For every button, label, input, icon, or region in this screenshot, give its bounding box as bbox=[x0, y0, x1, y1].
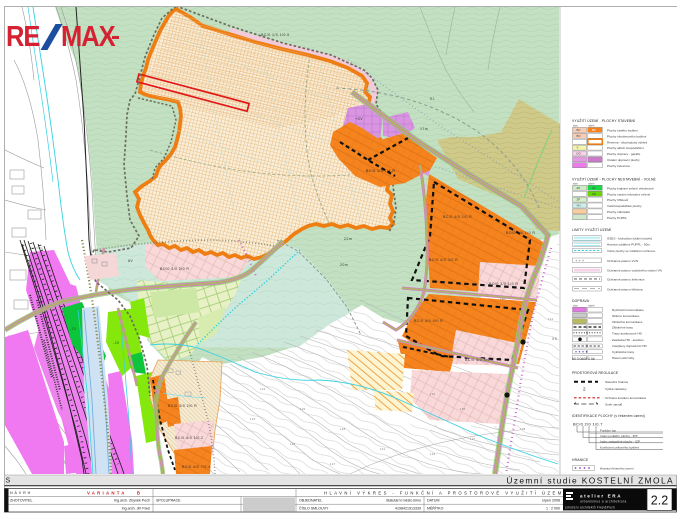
svg-text:Sběrné komunikace: Sběrné komunikace bbox=[612, 314, 640, 318]
svg-text:Plochy aktivit hospodářství: Plochy aktivit hospodářství bbox=[607, 146, 644, 150]
svg-text:Plochy všeobecného bydlení: Plochy všeobecného bydlení bbox=[607, 134, 647, 138]
svg-text:Hranice oddálení PUPFL - 50m: Hranice oddálení PUPFL - 50m bbox=[607, 243, 650, 247]
svg-text:ZR: ZR bbox=[592, 192, 596, 196]
svg-text:srpen 2008: srpen 2008 bbox=[542, 499, 560, 503]
svg-text:Plochy hřbitovů: Plochy hřbitovů bbox=[607, 198, 628, 202]
svg-text:Zklidněné trasy: Zklidněné trasy bbox=[612, 326, 633, 330]
svg-text:Statutární město Brno: Statutární město Brno bbox=[386, 499, 421, 503]
svg-text:Ochranné pásmo vzdušného veden: Ochranné pásmo vzdušného vedení VN bbox=[607, 269, 662, 273]
svg-text:131: 131 bbox=[380, 447, 386, 451]
svg-text:Zastávka HD - autobus: Zastávka HD - autobus bbox=[612, 338, 644, 342]
svg-text:Plochy čistého bydlení: Plochy čistého bydlení bbox=[607, 129, 638, 133]
svg-text:DATUM: DATUM bbox=[427, 499, 440, 503]
svg-text:Územní studie KOSTELNÍ ZMOLA: Územní studie KOSTELNÍ ZMOLA bbox=[506, 476, 674, 486]
svg-text:124: 124 bbox=[260, 387, 266, 391]
svg-text:Vodohospodářské plochy: Vodohospodářské plochy bbox=[607, 204, 642, 208]
svg-text:VARIANTA B: VARIANTA B bbox=[87, 490, 142, 495]
svg-text:B1: B1 bbox=[430, 97, 435, 101]
svg-text:Ochranné pásmo železnice: Ochranné pásmo železnice bbox=[607, 278, 645, 282]
svg-text:BC/0 4/0 7/0.4: BC/0 4/0 7/0.4 bbox=[182, 465, 211, 469]
svg-text:Hranice řešeného území: Hranice řešeného území bbox=[600, 467, 634, 471]
svg-text:Volné plochy se zvláštním reži: Volné plochy se zvláštním režimem bbox=[607, 249, 656, 253]
svg-text:20m: 20m bbox=[340, 263, 348, 267]
svg-text:BO/0 3/0 2/0 R: BO/0 3/0 2/0 R bbox=[160, 267, 189, 271]
svg-text:HLAVNÍ VÝKRES - FUNKČNÍ A PROS: HLAVNÍ VÝKRES - FUNKČNÍ A PROSTOROVÉ VYU… bbox=[324, 490, 567, 495]
svg-text:123: 123 bbox=[250, 417, 256, 421]
svg-text:Obslužné komunikace: Obslužné komunikace bbox=[612, 320, 643, 324]
svg-text:Ing.arch. Zbyněk Pech: Ing.arch. Zbyněk Pech bbox=[114, 499, 150, 503]
svg-text:LIMITY VYUŽITÍ ÚZEMÍ: LIMITY VYUŽITÍ ÚZEMÍ bbox=[572, 227, 611, 232]
svg-text:stav: stav bbox=[573, 124, 578, 128]
svg-text:VH: VH bbox=[577, 204, 581, 208]
svg-text:+SV: +SV bbox=[355, 117, 363, 121]
svg-text:urbanismus a architektura: urbanismus a architektura bbox=[580, 500, 627, 504]
svg-text:+ + +: + + + bbox=[575, 258, 585, 263]
svg-text:stav: stav bbox=[573, 181, 578, 185]
svg-text:Stavební hranice: Stavební hranice bbox=[605, 380, 628, 384]
svg-text:návrh: návrh bbox=[588, 303, 595, 307]
svg-text:Směr vjezdů: Směr vjezdů bbox=[605, 403, 622, 407]
svg-text:Plochy železnice: Plochy železnice bbox=[607, 164, 630, 168]
svg-text:-20: -20 bbox=[70, 327, 76, 331]
svg-text:137: 137 bbox=[470, 437, 476, 441]
svg-text:BC/0 5/0 2/0 R: BC/0 5/0 2/0 R bbox=[168, 404, 197, 408]
svg-text:140: 140 bbox=[500, 297, 506, 301]
svg-text:SPOLUPRACE: SPOLUPRACE bbox=[156, 499, 181, 503]
svg-text:-20: -20 bbox=[113, 341, 119, 345]
svg-text:S: S bbox=[6, 478, 11, 485]
svg-text:Ochranné pásmo hřbitova: Ochranné pásmo hřbitova bbox=[607, 287, 643, 291]
svg-text:BC: BC bbox=[577, 128, 581, 132]
svg-text:ZP: ZP bbox=[577, 198, 581, 202]
svg-text:návrh: návrh bbox=[588, 124, 595, 128]
svg-text:Ochranné pásmo VVN: Ochranné pásmo VVN bbox=[607, 259, 638, 263]
svg-text:VYUŽITÍ ÚZEMÍ - PLOCHY STAVEBN: VYUŽITÍ ÚZEMÍ - PLOCHY STAVEBNÍ bbox=[572, 118, 635, 123]
svg-text:DG: DG bbox=[577, 152, 582, 156]
svg-text:Rezerva - dlouhodobý výhled: Rezerva - dlouhodobý výhled bbox=[607, 140, 647, 144]
svg-text:135: 135 bbox=[460, 407, 466, 411]
svg-text:BC/0 4/0 1/0.2: BC/0 4/0 1/0.2 bbox=[175, 436, 204, 440]
svg-text:X9: X9 bbox=[552, 337, 557, 341]
svg-text:142: 142 bbox=[548, 317, 554, 321]
svg-text:BC/0 4/0 2/0 R: BC/0 4/0 2/0 R bbox=[443, 215, 472, 219]
svg-text:ZK: ZK bbox=[592, 186, 596, 190]
svg-text:ZHOTOVITEL: ZHOTOVITEL bbox=[10, 499, 33, 503]
svg-text:BO/0 3/0 1/0 R: BO/0 3/0 1/0 R bbox=[506, 231, 535, 235]
svg-text:17m: 17m bbox=[420, 127, 428, 131]
svg-text:návrh: návrh bbox=[588, 181, 595, 185]
svg-text:Index podlažní plochy - IPP: Index podlažní plochy - IPP bbox=[600, 434, 638, 438]
svg-text:2: 2 bbox=[583, 387, 586, 392]
svg-text:Hlavní pěší tahy: Hlavní pěší tahy bbox=[612, 356, 635, 360]
svg-text:DOPRAVA: DOPRAVA bbox=[572, 299, 590, 303]
svg-text:Ochrana koridoru komunikace: Ochrana koridoru komunikace bbox=[605, 396, 647, 400]
svg-text:IDENTIFIKACE PLOCHY (v řešeném: IDENTIFIKACE PLOCHY (v řešeném území) bbox=[572, 414, 645, 418]
svg-text:Plochy PUPFL: Plochy PUPFL bbox=[607, 216, 627, 220]
svg-text:126: 126 bbox=[300, 407, 306, 411]
svg-text:4198421913339: 4198421913339 bbox=[395, 507, 421, 511]
svg-text:ZK: ZK bbox=[577, 186, 581, 190]
svg-text:Index zastavěné plochy - IZP: Index zastavěné plochy - IZP bbox=[600, 439, 640, 443]
svg-text:127: 127 bbox=[330, 462, 336, 466]
svg-text:22m: 22m bbox=[344, 237, 352, 241]
svg-text:atelier ERA: atelier ERA bbox=[580, 494, 622, 499]
svg-text:BC/0 1/0.1/4-R: BC/0 1/0.1/4-R bbox=[366, 169, 395, 173]
svg-text:Plochy dopravy - garáže: Plochy dopravy - garáže bbox=[607, 152, 641, 156]
svg-text:Plochy ostatní rekreační zelen: Plochy ostatní rekreační zeleně bbox=[607, 192, 650, 196]
svg-text:125: 125 bbox=[290, 442, 296, 446]
svg-text:Plochy krajinné zeleně všeobec: Plochy krajinné zeleně všeobecné bbox=[607, 186, 654, 190]
svg-text:2.2: 2.2 bbox=[651, 494, 668, 508]
svg-text:Funkční typ: Funkční typ bbox=[600, 429, 616, 433]
svg-text:BC/0 4/0 4/0 R: BC/0 4/0 4/0 R bbox=[414, 319, 443, 323]
svg-text:ČÍSLO SMLOUVY: ČÍSLO SMLOUVY bbox=[299, 506, 329, 511]
svg-text:Výška zástavby: Výška zástavby bbox=[605, 387, 627, 391]
svg-text:NÁVRH: NÁVRH bbox=[10, 491, 32, 495]
svg-text:BC: BC bbox=[592, 128, 596, 132]
svg-text:Rychlostní komunikace: Rychlostní komunikace bbox=[612, 308, 644, 312]
svg-text:128: 128 bbox=[340, 427, 346, 431]
svg-text:Ostatní dopravní plochy: Ostatní dopravní plochy bbox=[607, 158, 640, 162]
svg-text:BC/0 2/0 1/0.7: BC/0 2/0 1/0.7 bbox=[573, 422, 603, 427]
svg-text:BC/0 1/0.1/0.9: BC/0 1/0.1/0.9 bbox=[261, 33, 290, 37]
svg-text:stav: stav bbox=[573, 303, 578, 307]
svg-text:Koeficient celkového bydlení: Koeficient celkového bydlení bbox=[600, 446, 639, 450]
svg-text:Ing.arch. Jiří Fixel: Ing.arch. Jiří Fixel bbox=[122, 507, 151, 511]
svg-text:Trasy autobusové HD: Trasy autobusové HD bbox=[612, 331, 643, 335]
svg-text:Plochy zahrádek: Plochy zahrádek bbox=[607, 210, 630, 214]
svg-text:ÚSES - biokoridor lokální (náv: ÚSES - biokoridor lokální (návrh) bbox=[607, 237, 652, 241]
svg-text:trolejbusy dopravních HD: trolejbusy dopravních HD bbox=[612, 344, 648, 348]
svg-text:BO/0 3/0 1/0 R: BO/0 3/0 1/0 R bbox=[489, 282, 518, 286]
svg-text:BC/0 3/0 4/0 R: BC/0 3/0 4/0 R bbox=[465, 358, 494, 362]
svg-text:1 : 2 000: 1 : 2 000 bbox=[546, 507, 560, 511]
svg-text:HRANICE: HRANICE bbox=[572, 458, 589, 462]
svg-text:PROSTOROVÁ REGULACE: PROSTOROVÁ REGULACE bbox=[572, 371, 619, 375]
svg-text:Cyklistické trasy: Cyklistické trasy bbox=[612, 350, 635, 354]
svg-text:138: 138 bbox=[520, 427, 526, 431]
svg-text:#0 0 0#0# 0 0#: #0 0 0#0# 0 0# bbox=[572, 357, 595, 361]
svg-text:V: V bbox=[577, 146, 579, 150]
svg-text:8V: 8V bbox=[128, 259, 133, 263]
svg-text:132: 132 bbox=[430, 392, 436, 396]
svg-text:MĚŘÍTKO: MĚŘÍTKO bbox=[427, 506, 444, 511]
svg-text:VYUŽITÍ ÚZEMÍ - PLOCHY NESTAVE: VYUŽITÍ ÚZEMÍ - PLOCHY NESTAVEBNÍ - VOLN… bbox=[572, 177, 657, 182]
svg-text:BC/0 4/0 3/0 R: BC/0 4/0 3/0 R bbox=[429, 258, 458, 262]
svg-text:sdružení architektů Fixel&Pech: sdružení architektů Fixel&Pech bbox=[565, 505, 615, 509]
svg-text:OBJEDNATEL: OBJEDNATEL bbox=[299, 499, 322, 503]
svg-text:134: 134 bbox=[430, 452, 436, 456]
